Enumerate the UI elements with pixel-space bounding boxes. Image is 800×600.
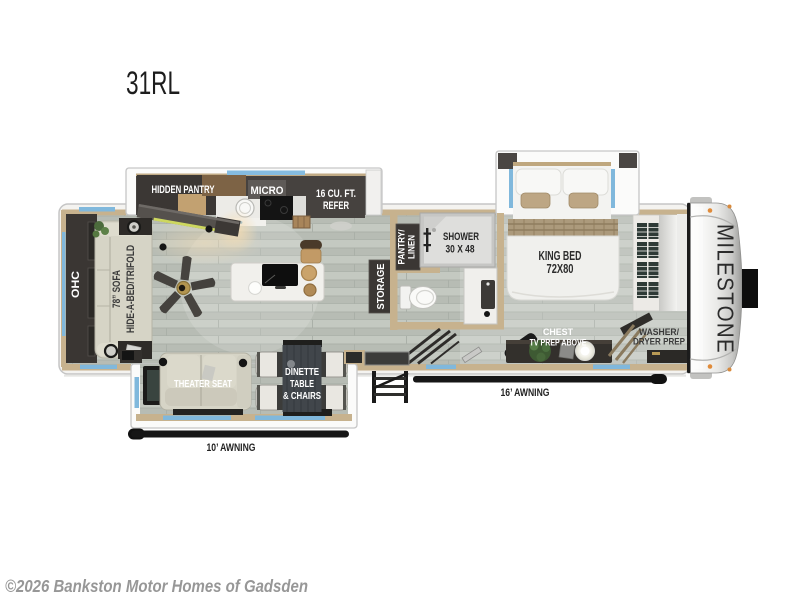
svg-text:10’ AWNING: 10’ AWNING (207, 442, 256, 454)
svg-text:78” SOFA: 78” SOFA (111, 270, 123, 308)
svg-text:OHC: OHC (70, 271, 82, 298)
svg-text:HIDE-A-BED/TRIFOLD: HIDE-A-BED/TRIFOLD (125, 245, 137, 333)
svg-text:CHEST: CHEST (543, 327, 573, 338)
svg-text:HIDDEN PANTRY: HIDDEN PANTRY (152, 184, 215, 196)
svg-text:LINEN: LINEN (407, 235, 418, 259)
svg-text:16 CU. FT.: 16 CU. FT. (316, 188, 356, 200)
svg-text:30 X 48: 30 X 48 (446, 244, 475, 256)
svg-text:DINETTE: DINETTE (285, 366, 319, 378)
svg-text:THEATER SEAT: THEATER SEAT (174, 379, 232, 390)
svg-text:REFER: REFER (323, 200, 349, 212)
svg-text:16’ AWNING: 16’ AWNING (501, 387, 550, 399)
svg-text:TABLE: TABLE (290, 378, 314, 390)
svg-text:TV PREP ABOVE: TV PREP ABOVE (530, 338, 587, 349)
svg-text:DRYER PREP: DRYER PREP (633, 337, 686, 348)
svg-text:31RL: 31RL (126, 65, 180, 101)
svg-text:& CHAIRS: & CHAIRS (283, 390, 321, 402)
svg-text:MILESTONE: MILESTONE (713, 224, 739, 354)
svg-text:STORAGE: STORAGE (375, 264, 387, 310)
svg-text:MICRO: MICRO (251, 185, 284, 197)
svg-text:72X80: 72X80 (547, 261, 574, 276)
svg-text:©2026 Bankston Motor Homes of: ©2026 Bankston Motor Homes of Gadsden (5, 576, 308, 596)
svg-text:SHOWER: SHOWER (443, 231, 479, 243)
